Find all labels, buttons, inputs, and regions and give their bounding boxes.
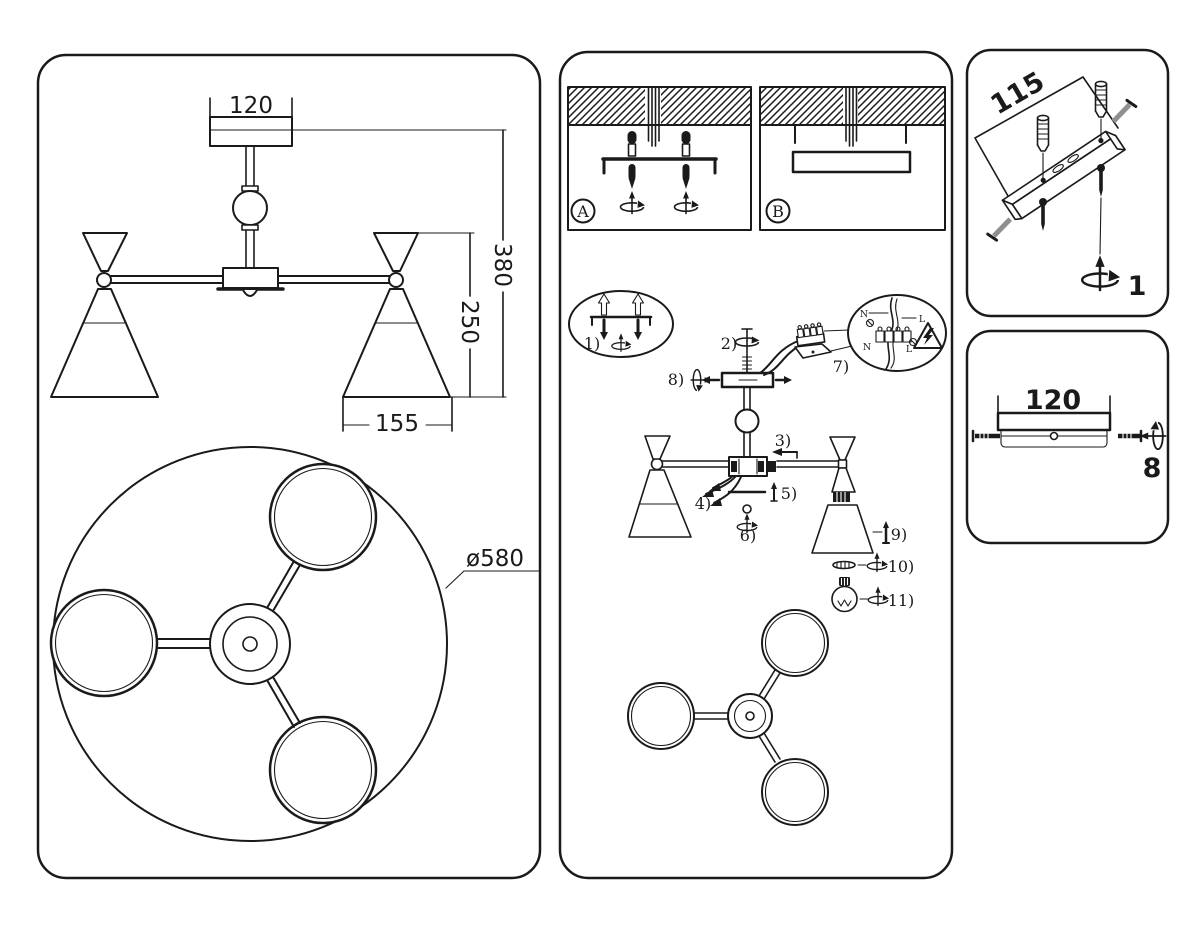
canopy-hole (1051, 433, 1058, 440)
canopy-length-label: 120 (1025, 385, 1081, 416)
dimensions-panel: 120 (38, 55, 540, 878)
step-1-callout: 1) (569, 291, 673, 357)
canopy-detail-panel: 120 8 (967, 331, 1168, 543)
step-8-label: 8) (668, 370, 684, 389)
stem-ball (736, 410, 759, 433)
option-a-label: A (576, 202, 589, 221)
step-7-label: 7) (833, 357, 849, 376)
step-5-label: 5) (781, 484, 797, 503)
step-9-label: 9) (891, 525, 907, 544)
step-11-label: 11) (888, 591, 915, 610)
shade-width-label: 155 (375, 411, 419, 437)
shade-outline (762, 759, 828, 825)
step-6-label: 6) (740, 526, 756, 545)
wiring-detail-balloon: N L N L (848, 295, 946, 371)
total-height-label: 380 (489, 243, 515, 287)
step-4-label: 4) (695, 494, 711, 513)
arm-connector (768, 461, 776, 472)
assembly-panel: A B (560, 52, 952, 878)
shade-outline (51, 590, 157, 696)
stem-ball (233, 191, 267, 225)
option-b-label: B (772, 202, 784, 221)
bulb-glass (832, 587, 857, 612)
mount-option-b: B (760, 87, 945, 230)
shade-drop-label: 250 (456, 300, 482, 344)
live-label: L (919, 314, 926, 325)
bracket-detail-panel: 115 (967, 50, 1168, 316)
shade-outline (270, 464, 376, 570)
neutral-label: N (860, 309, 868, 320)
canopy-width-label: 120 (229, 93, 273, 119)
canopy (210, 117, 292, 146)
shade-outline (270, 717, 376, 823)
canopy-bar (998, 413, 1110, 430)
shade-outline (628, 683, 694, 749)
live-label: L (906, 344, 913, 355)
step-2-label: 2) (721, 334, 737, 353)
canopy-screw-qty-label: 8 (1143, 453, 1162, 484)
neutral-label: N (863, 342, 871, 353)
center-hub (223, 268, 278, 288)
step-1-label: 1) (584, 334, 600, 353)
lamp-socket (833, 492, 850, 502)
step-10-label: 10) (888, 557, 915, 576)
diameter-label: ø580 (466, 546, 524, 572)
step-3-label: 3) (775, 431, 791, 450)
mounting-plate (793, 152, 910, 172)
finial-nut (743, 505, 751, 513)
bracket-qty-label: 1 (1128, 271, 1147, 302)
instruction-sheet: 120 (0, 0, 1200, 933)
mount-option-a: A (568, 87, 751, 230)
shade-outline (762, 610, 828, 676)
